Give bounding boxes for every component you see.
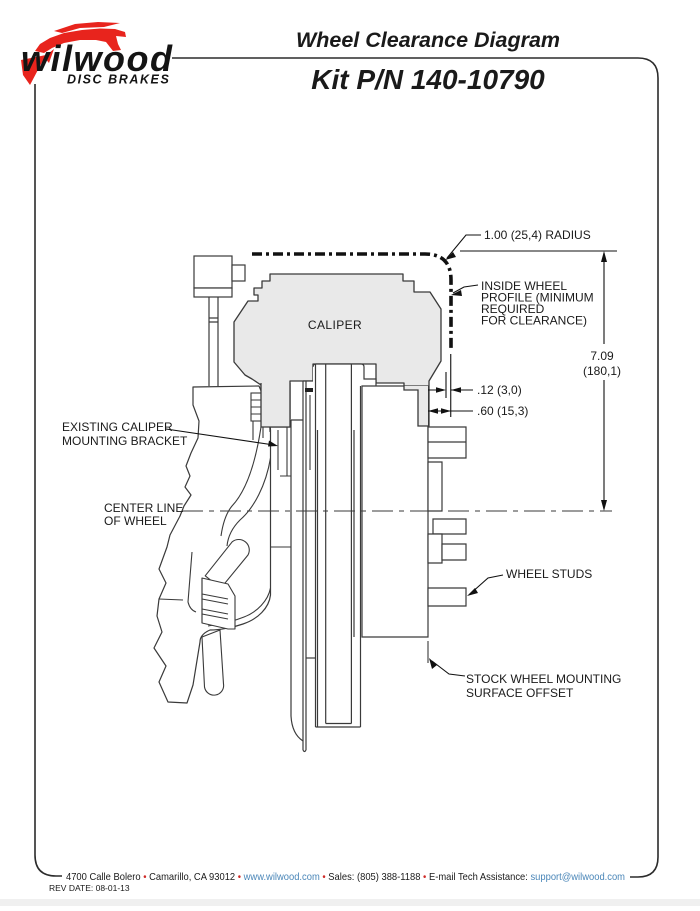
svg-text:(180,1): (180,1) xyxy=(583,364,621,378)
svg-text:7.09: 7.09 xyxy=(590,349,614,363)
svg-text:CALIPER: CALIPER xyxy=(308,318,362,332)
svg-text:Wheel Clearance Diagram: Wheel Clearance Diagram xyxy=(296,28,560,52)
svg-text:EXISTING CALIPER: EXISTING CALIPER xyxy=(62,420,173,434)
svg-text:.60 (15,3): .60 (15,3) xyxy=(477,404,528,418)
svg-text:4700 Calle Bolero • Camarillo,: 4700 Calle Bolero • Camarillo, CA 93012 … xyxy=(66,871,625,883)
svg-text:WHEEL STUDS: WHEEL STUDS xyxy=(506,567,592,581)
svg-text:MOUNTING BRACKET: MOUNTING BRACKET xyxy=(62,434,188,448)
svg-text:CENTER LINE: CENTER LINE xyxy=(104,501,183,515)
svg-text:OF WHEEL: OF WHEEL xyxy=(104,514,167,528)
svg-text:REV DATE: 08-01-13: REV DATE: 08-01-13 xyxy=(49,883,130,893)
svg-text:.12 (3,0): .12 (3,0) xyxy=(477,383,522,397)
svg-text:SURFACE OFFSET: SURFACE OFFSET xyxy=(466,686,574,700)
svg-text:STOCK WHEEL MOUNTING: STOCK WHEEL MOUNTING xyxy=(466,672,621,686)
svg-text:1.00 (25,4) RADIUS: 1.00 (25,4) RADIUS xyxy=(484,228,591,242)
svg-text:FOR CLEARANCE): FOR CLEARANCE) xyxy=(481,314,587,328)
svg-text:DISC BRAKES: DISC BRAKES xyxy=(67,73,170,87)
svg-text:Kit P/N 140-10790: Kit P/N 140-10790 xyxy=(311,64,545,95)
